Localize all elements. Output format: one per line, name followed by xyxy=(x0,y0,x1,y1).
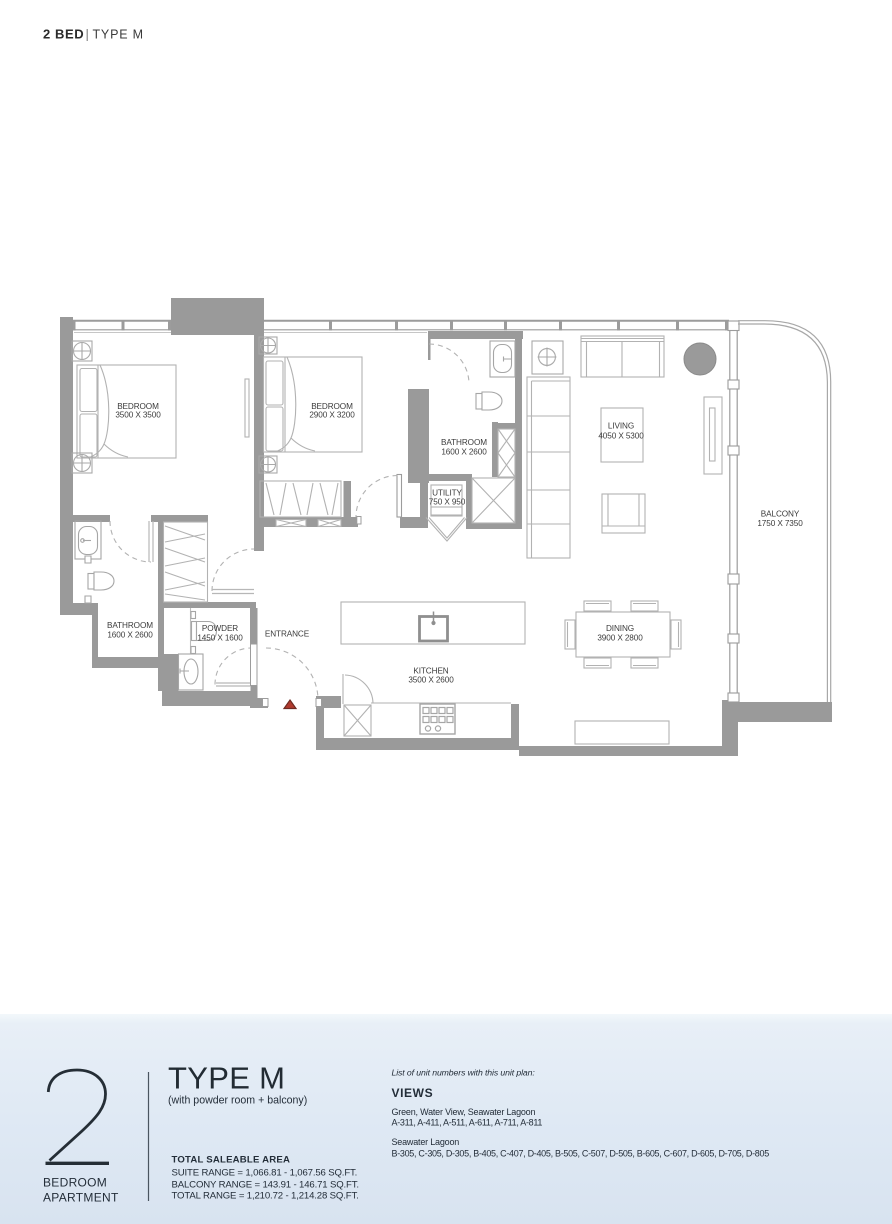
svg-text:TYPE M: TYPE M xyxy=(93,28,144,42)
svg-text:|: | xyxy=(86,27,89,42)
svg-text:APARTMENT: APARTMENT xyxy=(43,1191,119,1205)
svg-text:3500 X 2600: 3500 X 2600 xyxy=(408,676,454,685)
svg-text:750 X 950: 750 X 950 xyxy=(429,498,466,507)
svg-text:BALCONY: BALCONY xyxy=(761,510,800,519)
svg-text:UTILITY: UTILITY xyxy=(432,489,462,498)
svg-text:2900 X 3200: 2900 X 3200 xyxy=(309,410,355,419)
svg-text:List of unit numbers with this: List of unit numbers with this unit plan… xyxy=(392,1068,536,1078)
svg-text:1600 X 2600: 1600 X 2600 xyxy=(107,631,153,640)
svg-text:BEDROOM: BEDROOM xyxy=(43,1176,107,1190)
svg-text:ENTRANCE: ENTRANCE xyxy=(265,630,310,639)
svg-text:1750 X 7350: 1750 X 7350 xyxy=(757,519,803,528)
svg-text:BATHROOM: BATHROOM xyxy=(107,621,153,630)
svg-text:KITCHEN: KITCHEN xyxy=(413,667,448,676)
svg-text:TOTAL SALEABLE AREA: TOTAL SALEABLE AREA xyxy=(172,1155,291,1166)
svg-text:A-311, A-411, A-511, A-611, A-: A-311, A-411, A-511, A-611, A-711, A-811 xyxy=(392,1118,543,1128)
svg-text:Green, Water View, Seawater La: Green, Water View, Seawater Lagoon xyxy=(392,1107,536,1117)
svg-text:3500 X 3500: 3500 X 3500 xyxy=(115,410,161,419)
svg-text:POWDER: POWDER xyxy=(202,624,238,633)
svg-text:BATHROOM: BATHROOM xyxy=(441,438,487,447)
svg-text:TYPE M: TYPE M xyxy=(168,1061,285,1096)
svg-text:BALCONY RANGE = 143.91 - 146.7: BALCONY RANGE = 143.91 - 146.71 SQ.FT. xyxy=(172,1180,359,1191)
svg-text:1600 X 2600: 1600 X 2600 xyxy=(441,448,487,457)
svg-text:VIEWS: VIEWS xyxy=(392,1086,434,1100)
svg-text:LIVING: LIVING xyxy=(608,422,634,431)
svg-text:SUITE RANGE = 1,066.81 - 1,067: SUITE RANGE = 1,066.81 - 1,067.56 SQ.FT. xyxy=(172,1168,358,1179)
svg-text:2 BED: 2 BED xyxy=(43,27,84,42)
svg-text:4050 X 5300: 4050 X 5300 xyxy=(598,432,644,441)
svg-text:1450 X 1600: 1450 X 1600 xyxy=(197,634,243,643)
svg-text:Seawater Lagoon: Seawater Lagoon xyxy=(392,1137,460,1147)
svg-text:DINING: DINING xyxy=(606,624,634,633)
svg-text:(with powder room + balcony): (with powder room + balcony) xyxy=(168,1094,307,1106)
svg-text:3900 X 2800: 3900 X 2800 xyxy=(597,634,643,643)
svg-text:B-305, C-305, D-305, B-405, C-: B-305, C-305, D-305, B-405, C-407, D-405… xyxy=(392,1149,770,1159)
svg-text:TOTAL RANGE = 1,210.72 - 1,214: TOTAL RANGE = 1,210.72 - 1,214.28 SQ.FT. xyxy=(172,1191,359,1202)
